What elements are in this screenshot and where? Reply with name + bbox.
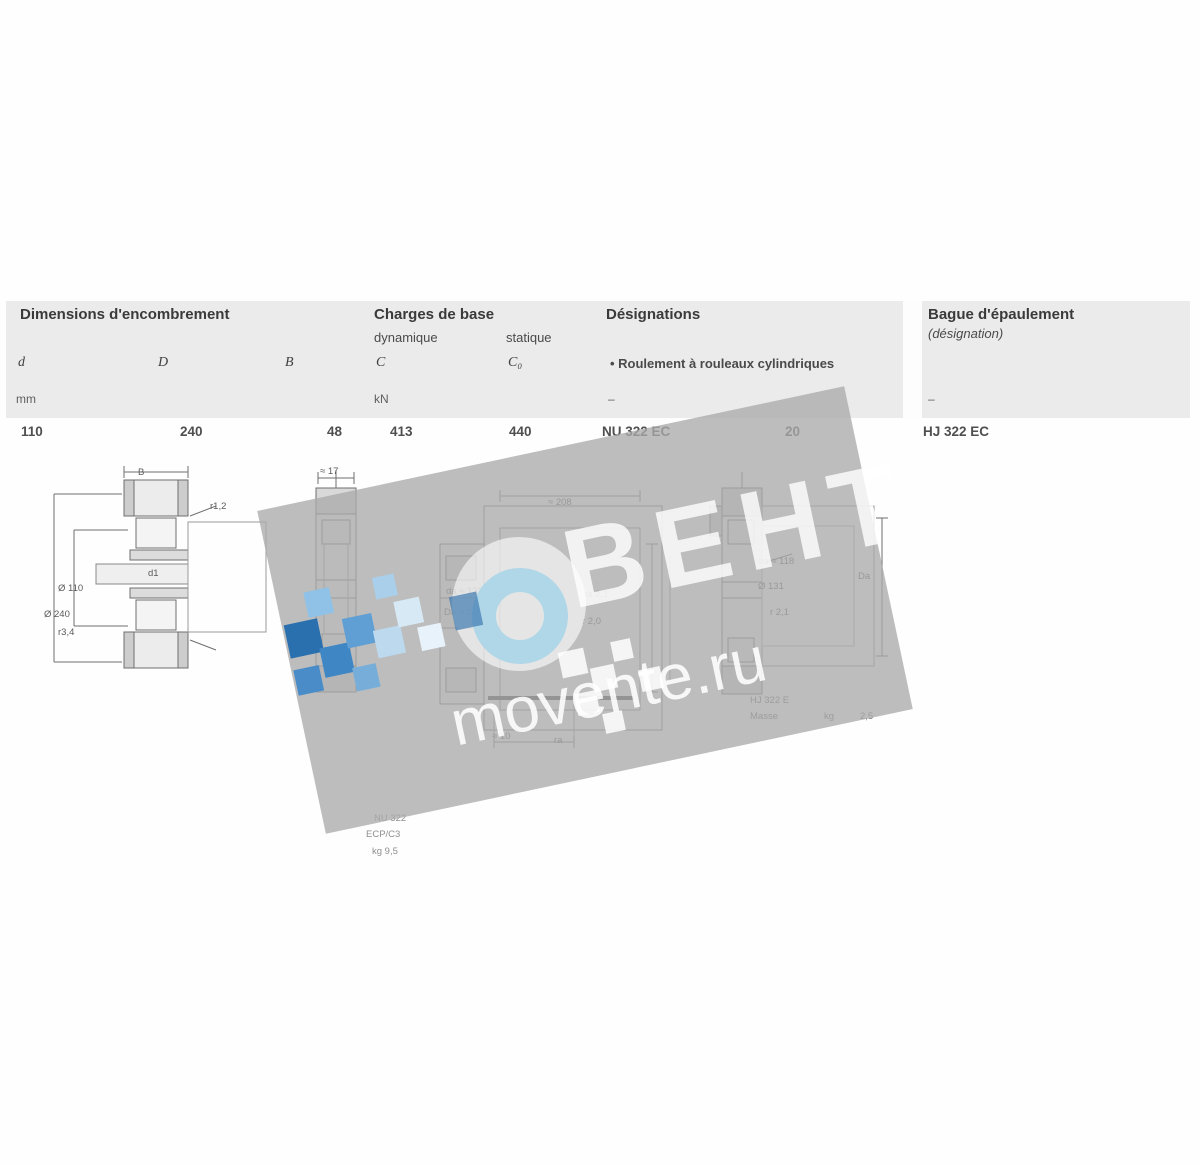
cell-bore-d: 110 [21,424,43,439]
cell-outer-D: 240 [180,424,203,439]
cell-width-B: 48 [327,424,342,439]
units-mm: mm [16,392,36,406]
dim-label-r34: r3,4 [58,627,74,638]
dim-label-outer: Ø 240 [44,609,70,620]
watermark-donut-icon [472,568,568,664]
column-group-load-ratings: Charges de base [374,306,494,323]
units-angle-ring: – [928,392,935,406]
column-group-designations: Désignations [606,306,700,323]
symbol-C: C [376,355,385,371]
dim-label-bore: Ø 110 [58,583,83,594]
catalog-page: Dimensions d'encombrement Charges de bas… [0,0,1200,1165]
dim-label-d1: d1 [148,568,159,579]
subheader-bearing-type: • Roulement à rouleaux cylindriques [610,356,834,371]
table-header-gap [903,301,922,418]
symbol-D: D [158,355,168,371]
symbol-d: d [18,355,25,371]
figure-bearing-cross-section: B r1,2 d1 Ø 110 Ø 240 r3,4 [38,464,270,692]
cell-angle-ring-designation: HJ 322 EC [923,424,989,439]
subheader-dynamic: dynamique [374,330,438,345]
figure2-caption-line3: kg 9,5 [372,846,398,857]
symbol-B: B [285,355,294,371]
subheader-static: statique [506,330,552,345]
cell-dynamic-C: 413 [390,424,413,439]
dim-label-width: ≈ 17 [320,466,338,477]
dim-label-B: B [138,467,144,478]
column-group-dimensions: Dimensions d'encombrement [20,306,229,323]
units-designations: – [608,392,615,406]
dim-label-r12: r1,2 [210,501,226,512]
units-kn: kN [374,392,389,406]
figure2-caption-line2: ECP/C3 [366,829,400,840]
subheader-angle-ring-designation: (désignation) [928,326,1003,341]
cell-static-C0: 440 [509,424,532,439]
symbol-C0: C₀ [508,355,522,371]
column-group-angle-ring: Bague d'épaulement [928,306,1074,323]
